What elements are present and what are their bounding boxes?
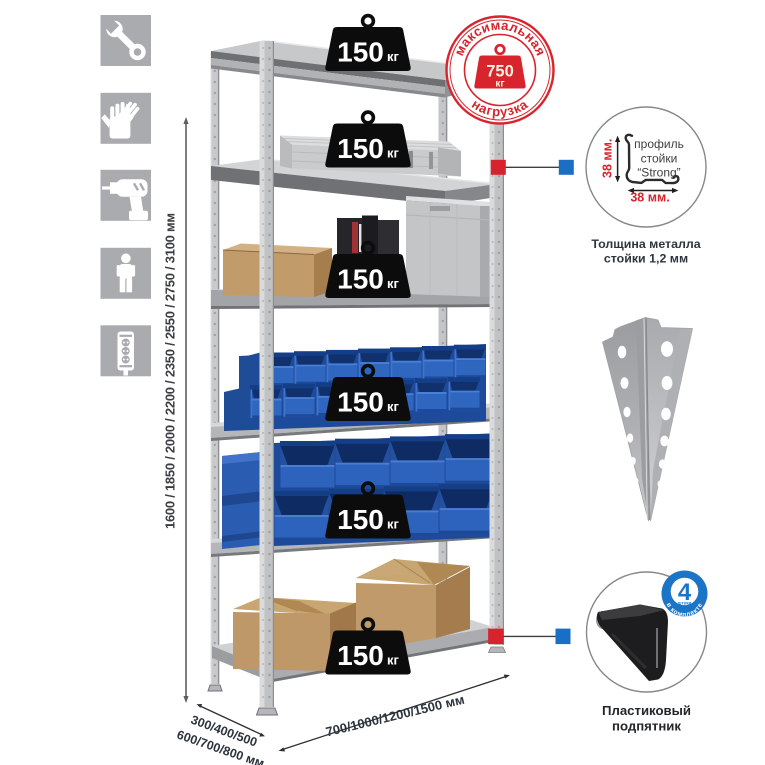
svg-text:1600 / 1850 / 2000 / 2200 / 23: 1600 / 1850 / 2000 / 2200 / 2350 / 2550 … bbox=[163, 213, 178, 529]
svg-text:стойки: стойки bbox=[641, 151, 678, 165]
svg-text:кг: кг bbox=[495, 79, 504, 90]
svg-text:38 мм.: 38 мм. bbox=[601, 139, 615, 178]
svg-text:38 мм.: 38 мм. bbox=[630, 191, 669, 205]
svg-text:Пластиковый: Пластиковый bbox=[602, 703, 691, 718]
svg-text:штуки: штуки bbox=[678, 601, 692, 606]
svg-text:подпятник: подпятник bbox=[612, 719, 681, 734]
svg-text:стойки 1,2 мм: стойки 1,2 мм bbox=[604, 252, 688, 266]
svg-text:Толщина металла: Толщина металла bbox=[591, 237, 700, 251]
svg-text:профиль: профиль bbox=[634, 137, 684, 151]
svg-text:“Strong”: “Strong” bbox=[637, 165, 680, 179]
